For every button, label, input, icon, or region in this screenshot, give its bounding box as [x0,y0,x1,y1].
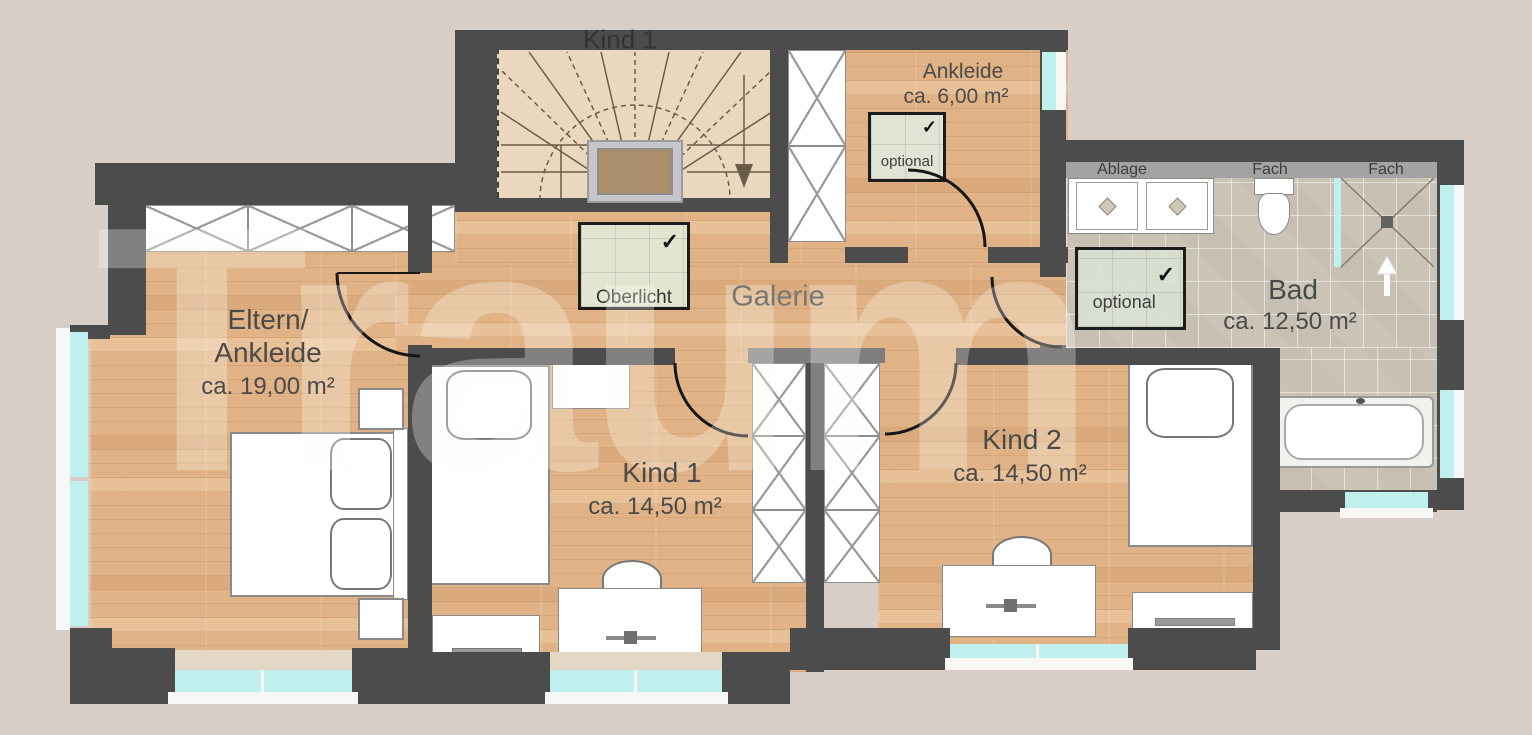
window [1042,52,1056,110]
room-label-galerie: Galerie [731,281,825,314]
wall-wardrobe-top [748,348,885,363]
wall [112,648,175,704]
desk-kind2 [942,565,1096,637]
bath-shelf-label-fach-left: Fach [1252,161,1288,179]
desk-kind1 [558,588,702,662]
window [950,644,1039,658]
wardrobe-section [788,146,846,242]
window [70,481,88,626]
bath-shelf-label-fach-right: Fach [1368,161,1404,179]
wall [455,30,497,212]
window-sill [550,652,722,670]
checkmark-icon: ✓ [1157,262,1175,288]
window [1440,185,1454,320]
optional-label: optional [881,153,934,170]
wall [790,628,950,670]
mouse-kind2-body [1004,599,1017,612]
wardrobe-kind2 [824,363,880,583]
wardrobe-section [752,436,806,509]
wall [806,363,824,672]
window [175,670,264,692]
window [1440,390,1454,478]
room-label-kind1: Kind 1 [622,457,701,489]
wardrobe-section [145,205,248,252]
window-frame [1340,508,1433,518]
wardrobe-section [788,50,846,146]
wardrobe-section [824,510,880,583]
window-frame [1454,185,1464,320]
nightstand [358,388,404,430]
wall [408,345,432,672]
wardrobe-section [752,363,806,436]
wall [845,247,908,263]
bathtub-faucet [1356,398,1365,404]
wall [408,203,432,273]
toilet-bowl [1258,193,1290,235]
shelf-kind1-top [552,363,630,409]
nightstand [358,598,404,640]
optional-box-ankleide: ✓ optional [868,112,946,182]
window-frame [168,692,358,704]
room-area-bad: ca. 12,50 m² [1223,308,1356,336]
oberlicht-box: ✓ Oberlicht [578,222,690,310]
wardrobe-section [352,205,455,252]
floor-plan: ✓ Oberlicht ✓ optional ✓ optional Traum [0,0,1532,735]
wall [770,48,788,263]
window-frame [1454,390,1464,478]
pillow [446,370,532,440]
stair-down-arrow [735,164,753,188]
pillow [330,518,392,590]
bathtub-inner [1284,404,1424,460]
window-frame [545,692,728,704]
wardrobe-section [248,205,351,252]
bath-shelf-label-ablage: Ablage [1097,161,1147,179]
stair-landing-inner [597,148,673,195]
wardrobe-hall [788,50,846,242]
wardrobe-section [752,510,806,583]
room-label-ankleide: Ankleide [923,60,1004,84]
wall [988,247,1068,263]
room-area-eltern: ca. 19,00 m² [201,373,334,401]
room-label-eltern-line2: Ankleide [214,337,321,369]
room-label-bad: Bad [1268,274,1318,306]
mouse-kind1-body [624,631,637,644]
window [70,332,88,477]
wardrobe-section [824,436,880,509]
window [1039,644,1128,658]
checkmark-icon: ✓ [661,229,679,255]
window [550,670,637,692]
wall [1066,140,1462,162]
wall [70,628,112,704]
window-frame [56,328,70,630]
hidden-stair-label: Kind 1 [583,25,657,56]
optional-box-bad: ✓ optional [1075,247,1186,330]
window-frame [945,658,1133,670]
wall [108,163,146,335]
window-sill [175,650,352,670]
pillow [330,438,392,510]
wall [1128,628,1256,670]
wardrobe-kind1 [752,363,806,583]
checkmark-icon: ✓ [922,117,937,138]
shelf-kind2-bracket [1155,618,1235,626]
room-area-ankleide: ca. 6,00 m² [903,85,1008,109]
wall [722,652,790,704]
room-label-eltern-line1: Eltern/ [228,304,309,336]
wall [455,30,1068,50]
wall [428,652,550,704]
wardrobe-section [824,363,880,436]
bed-headboard [393,428,408,600]
shower-glass [1334,178,1341,267]
window [1345,492,1428,508]
room-label-kind2: Kind 2 [982,424,1061,456]
room-area-kind1: ca. 14,50 m² [588,493,721,521]
window [637,670,722,692]
wall [428,348,675,365]
optional-label: optional [1093,292,1156,313]
wall [956,348,1256,365]
window [264,670,352,692]
oberlicht-label: Oberlicht [596,287,672,309]
wall [95,163,458,205]
room-area-kind2: ca. 14,50 m² [953,460,1086,488]
pillow [1146,368,1234,438]
window-frame [1056,52,1066,110]
